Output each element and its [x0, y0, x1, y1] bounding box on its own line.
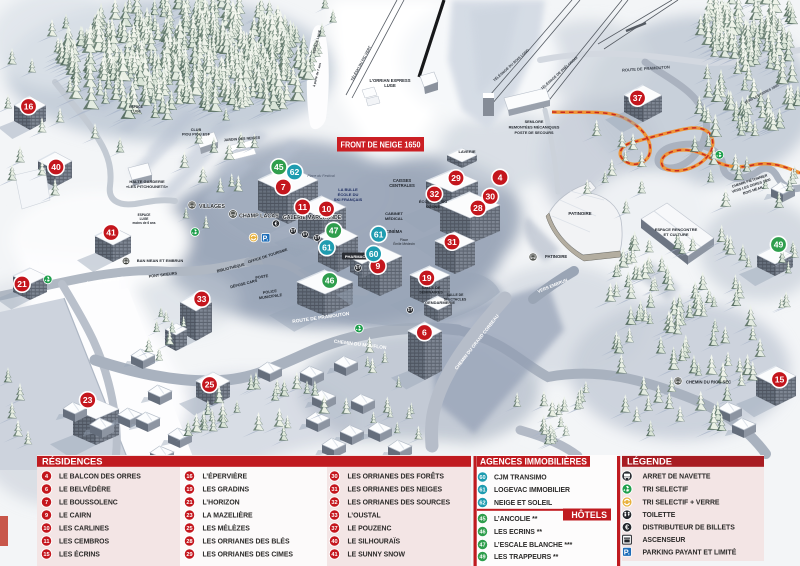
svg-text:19: 19 [186, 487, 192, 493]
svg-text:29: 29 [451, 173, 461, 183]
svg-text:LES ORRIANES DES FORÊTS: LES ORRIANES DES FORÊTS [348, 472, 445, 481]
svg-text:9: 9 [376, 261, 381, 271]
svg-text:LES ORRIANES DES NEIGES: LES ORRIANES DES NEIGES [348, 487, 443, 494]
svg-text:BAN MEAN ET EMBRUN: BAN MEAN ET EMBRUN [137, 258, 184, 263]
svg-text:LES ORRIANES DES SOURCES: LES ORRIANES DES SOURCES [348, 500, 451, 507]
svg-text:LES MÉLÈZES: LES MÉLÈZES [203, 524, 251, 533]
svg-text:LE POUZENC: LE POUZENC [348, 526, 392, 533]
svg-text:LES GRADINS: LES GRADINS [203, 487, 250, 494]
svg-text:61: 61 [479, 488, 485, 494]
svg-text:ARRET DE NAVETTE: ARRET DE NAVETTE [643, 474, 711, 481]
svg-text:LE BALCON DES ORRES: LE BALCON DES ORRES [59, 474, 141, 481]
svg-text:28: 28 [473, 203, 483, 213]
svg-text:L’ESCALE BLANCHE ***: L’ESCALE BLANCHE *** [494, 542, 573, 549]
svg-text:10: 10 [322, 204, 332, 214]
svg-text:€: € [625, 525, 629, 532]
svg-text:7: 7 [281, 182, 286, 192]
svg-text:LE SUNNY SNOW: LE SUNNY SNOW [348, 552, 406, 559]
svg-text:L’ANCOLIE **: L’ANCOLIE ** [494, 516, 538, 523]
svg-text:25: 25 [205, 380, 215, 390]
svg-text:LES ÉCRINS: LES ÉCRINS [59, 550, 100, 559]
svg-text:6: 6 [45, 487, 48, 493]
svg-text:15: 15 [43, 552, 49, 558]
svg-text:62: 62 [290, 167, 300, 177]
svg-text:TRI SELECTIF: TRI SELECTIF [643, 487, 689, 494]
svg-text:60: 60 [369, 249, 379, 259]
svg-text:10: 10 [43, 526, 49, 532]
svg-text:OZONE: OZONE [426, 204, 441, 209]
svg-text:40: 40 [51, 162, 61, 172]
svg-text:PATINOIRE: PATINOIRE [545, 254, 567, 259]
svg-text:SKI FRANÇAIS: SKI FRANÇAIS [334, 197, 363, 202]
svg-text:LUGE: LUGE [384, 83, 396, 88]
svg-text:DISTRIBUTEUR DE BILLETS: DISTRIBUTEUR DE BILLETS [643, 525, 736, 532]
svg-text:LE CAIRN: LE CAIRN [59, 513, 91, 520]
svg-text:61: 61 [322, 243, 332, 253]
svg-text:LUGE: LUGE [131, 109, 141, 113]
svg-text:33: 33 [331, 513, 337, 519]
svg-text:19: 19 [422, 273, 432, 283]
svg-text:LES ORRIANES DES CIMES: LES ORRIANES DES CIMES [203, 552, 294, 559]
svg-text:32: 32 [430, 189, 440, 199]
svg-text:L’HORIZON: L’HORIZON [203, 500, 240, 507]
svg-text:30: 30 [486, 192, 496, 202]
svg-text:LES ORRIANES DES BLÉS: LES ORRIANES DES BLÉS [203, 537, 290, 546]
svg-text:16: 16 [24, 102, 34, 112]
svg-text:15: 15 [775, 375, 785, 385]
svg-text:21: 21 [186, 500, 192, 506]
svg-text:P.: P. [263, 235, 269, 242]
svg-text:CENTRALES: CENTRALES [389, 183, 415, 188]
svg-text:46: 46 [479, 530, 485, 536]
svg-text:LA MAZELIÈRE: LA MAZELIÈRE [203, 511, 254, 520]
svg-text:16: 16 [186, 474, 192, 480]
svg-text:ASCENSEUR: ASCENSEUR [643, 537, 686, 544]
svg-text:€: € [275, 221, 278, 227]
svg-text:LES CEMBROS: LES CEMBROS [59, 539, 109, 546]
svg-text:POSTE DE SECOURS: POSTE DE SECOURS [514, 131, 553, 135]
svg-text:9: 9 [45, 513, 48, 519]
svg-text:CHAMP LACAS: CHAMP LACAS [239, 214, 279, 220]
svg-text:NEIGE ET SOLEIL: NEIGE ET SOLEIL [494, 500, 552, 507]
svg-text:LÉGENDE: LÉGENDE [627, 457, 672, 467]
svg-text:LE SILHOURAÏS: LE SILHOURAÏS [348, 538, 401, 546]
svg-text:P.: P. [624, 547, 630, 556]
svg-text:SÉMINAIRES: SÉMINAIRES [419, 290, 443, 295]
svg-text:FRONT DE NEIGE 1650: FRONT DE NEIGE 1650 [341, 140, 421, 150]
svg-text:40: 40 [331, 539, 337, 545]
svg-text:moins de 6 ans: moins de 6 ans [132, 221, 155, 225]
svg-text:45: 45 [479, 517, 485, 523]
svg-text:31: 31 [447, 237, 457, 247]
svg-text:23: 23 [83, 395, 93, 405]
svg-text:«LES PITCHOUNETS»: «LES PITCHOUNETS» [126, 184, 169, 189]
svg-text:41: 41 [106, 228, 116, 238]
svg-text:49: 49 [479, 555, 485, 561]
svg-text:6: 6 [422, 328, 427, 338]
svg-text:PATINOIRE: PATINOIRE [568, 211, 591, 216]
svg-text:CHEMIN DU RIOU SEC: CHEMIN DU RIOU SEC [686, 380, 731, 385]
svg-text:SEMLORE: SEMLORE [525, 120, 544, 124]
svg-text:Émile Médecin: Émile Médecin [393, 241, 415, 246]
svg-text:31: 31 [331, 487, 337, 493]
svg-text:L’OUSTAL: L’OUSTAL [348, 513, 381, 520]
svg-text:LES ECRINS **: LES ECRINS ** [494, 529, 542, 536]
svg-text:33: 33 [197, 294, 207, 304]
svg-text:28: 28 [186, 539, 192, 545]
svg-text:LE BELVÉDÈRE: LE BELVÉDÈRE [59, 485, 111, 494]
svg-text:60: 60 [479, 475, 485, 481]
svg-text:RÉSIDENCES: RÉSIDENCES [42, 457, 102, 467]
svg-text:HÔTELS: HÔTELS [571, 509, 607, 520]
svg-text:LAVERIE: LAVERIE [458, 149, 475, 154]
svg-text:45: 45 [274, 162, 284, 172]
svg-text:LOGEVAC IMMOBILIER: LOGEVAC IMMOBILIER [494, 487, 570, 494]
svg-text:LES CARLINES: LES CARLINES [59, 526, 109, 533]
svg-text:62: 62 [479, 501, 485, 507]
svg-text:46: 46 [325, 276, 335, 286]
svg-text:23: 23 [186, 513, 192, 519]
svg-text:47: 47 [479, 543, 485, 549]
svg-text:41: 41 [331, 552, 337, 558]
svg-text:21: 21 [17, 279, 27, 289]
svg-text:49: 49 [774, 240, 784, 250]
svg-text:ET CULTURE: ET CULTURE [663, 232, 688, 237]
svg-text:L’ÉPERVIÈRE: L’ÉPERVIÈRE [203, 472, 248, 481]
svg-text:CLUB: CLUB [191, 128, 202, 132]
svg-text:32: 32 [331, 500, 337, 506]
svg-text:37: 37 [633, 93, 643, 103]
svg-text:TOILETTE: TOILETTE [643, 512, 676, 519]
svg-text:SPECTACLES: SPECTACLES [444, 297, 467, 301]
svg-text:7: 7 [45, 500, 48, 506]
svg-text:LES TRAPPEURS **: LES TRAPPEURS ** [494, 554, 559, 561]
svg-text:PARKING PAYANT ET LIMITÉ: PARKING PAYANT ET LIMITÉ [643, 547, 737, 556]
svg-text:37: 37 [331, 526, 337, 532]
svg-text:CJM TRANSIMO: CJM TRANSIMO [494, 475, 547, 482]
svg-text:11: 11 [44, 539, 50, 545]
svg-text:61: 61 [374, 229, 384, 239]
svg-text:4: 4 [498, 173, 503, 183]
svg-text:PIOU PIOU ESF: PIOU PIOU ESF [182, 133, 211, 137]
svg-text:AGENCES IMMOBILIÈRES: AGENCES IMMOBILIÈRES [480, 457, 587, 467]
svg-text:LE BOUSSOLENC: LE BOUSSOLENC [59, 500, 118, 507]
svg-text:30: 30 [331, 474, 337, 480]
svg-text:VILLAGES: VILLAGES [199, 204, 225, 210]
svg-text:GALERIE MARCHANDE: GALERIE MARCHANDE [283, 215, 342, 221]
svg-text:TRI SELECTIF + VERRE: TRI SELECTIF + VERRE [643, 500, 720, 507]
svg-text:11: 11 [298, 202, 307, 212]
svg-text:47: 47 [329, 226, 339, 236]
svg-text:REMONTÉES MÉCANIQUES: REMONTÉES MÉCANIQUES [509, 125, 560, 130]
svg-text:Place du Festival: Place du Festival [307, 174, 335, 178]
svg-text:MÉDICAL: MÉDICAL [385, 216, 404, 221]
svg-text:29: 29 [186, 552, 192, 558]
svg-text:CINÉMA: CINÉMA [386, 229, 403, 234]
svg-text:25: 25 [186, 526, 192, 532]
